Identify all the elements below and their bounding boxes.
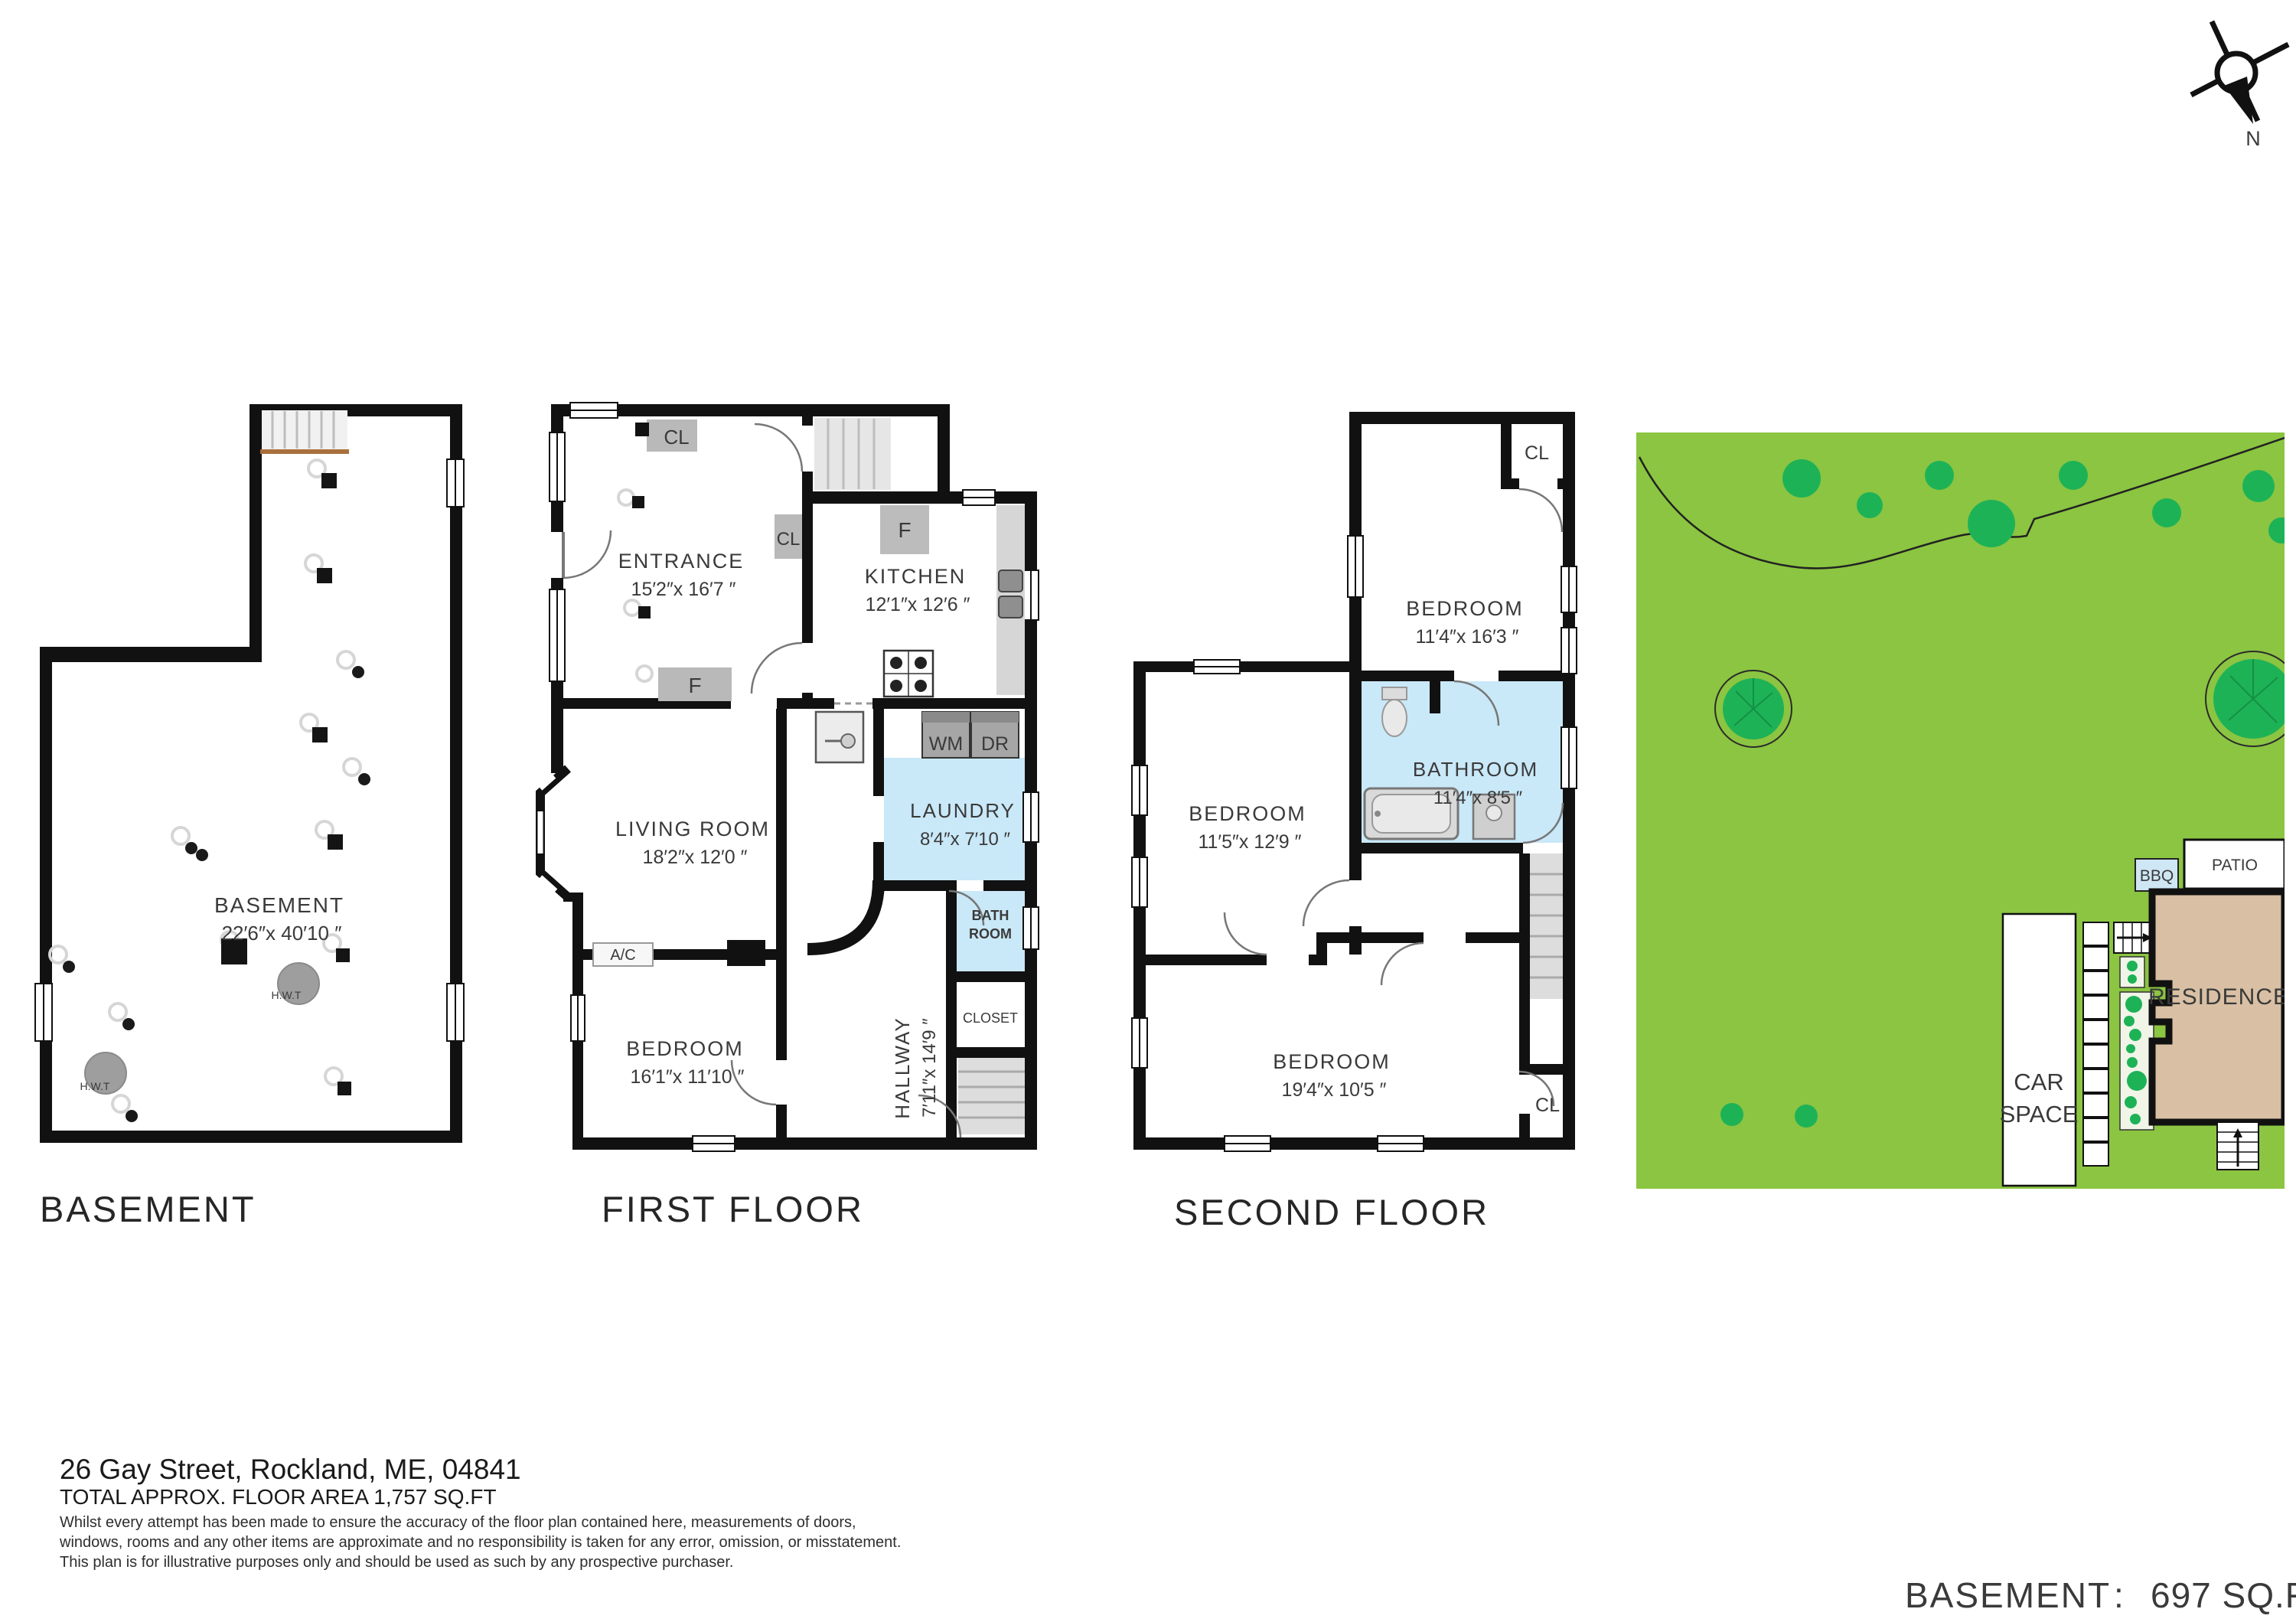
total-area-line: TOTAL APPROX. FLOOR AREA 1,757 SQ.FT — [60, 1485, 497, 1509]
ff-bedroom-dims: 16′1″x 11′10 ″ — [631, 1066, 745, 1088]
basement-title: BASEMENT — [40, 1189, 256, 1229]
basement-area-value: 697 SQ.FT — [2151, 1575, 2296, 1615]
entrance-label: ENTRANCE — [618, 550, 745, 573]
second-floor-plan: CL BEDROOM 11′4″x 16′3 ″ BATHROOM 11′4″x… — [1132, 412, 1577, 1232]
wm-label: WM — [929, 733, 963, 755]
basement-area-sep: : — [2114, 1575, 2124, 1615]
sf-bedroom-bottom-dims: 19′4″x 10′5 ″ — [1282, 1079, 1387, 1101]
shrub-bed — [2120, 992, 2154, 1130]
kitchen-label: KITCHEN — [865, 565, 967, 588]
basement-room-dims: 22′6″x 40′10 ″ — [222, 922, 342, 945]
basement-room-label: BASEMENT — [214, 893, 344, 917]
cl-mid-label: CL — [777, 529, 801, 550]
laundry-dims: 8′4″x 7′10 ″ — [920, 829, 1011, 850]
bbq-label: BBQ — [2140, 867, 2174, 885]
car-space-label2: SPACE — [2000, 1101, 2079, 1128]
residence-stairs — [2217, 1122, 2258, 1170]
sf-stairs — [1530, 853, 1563, 999]
sf-bathroom-dims: 11′4″x 8′5 ″ — [1433, 788, 1523, 808]
hot-water-tank-2: H.W.T — [80, 1053, 126, 1094]
sf-toilet — [1382, 687, 1407, 736]
living-room-dims: 18′2″x 12′0 ″ — [643, 847, 748, 868]
disclaimer-line-1: Whilst every attempt has been made to en… — [60, 1514, 856, 1531]
sf-cl-bottom-label: CL — [1535, 1095, 1560, 1116]
basement-stairs — [260, 410, 349, 452]
disclaimer-line-3: This plan is for illustrative purposes o… — [60, 1554, 734, 1571]
sf-cl-top-label: CL — [1525, 442, 1549, 464]
laundry-label: LAUNDRY — [910, 799, 1016, 822]
basement-posts — [221, 473, 351, 1095]
stove — [884, 651, 933, 697]
hallway-dims: 7′11″x 14′9 ″ — [919, 1018, 940, 1118]
compass-north-label: N — [2245, 127, 2261, 150]
hallway-label: HALLWAY — [891, 1017, 914, 1118]
cl-top-label: CL — [664, 426, 689, 449]
hot-water-tank-1: H.W.T — [272, 963, 319, 1004]
car-space — [2003, 914, 2076, 1186]
ff-bedroom-label: BEDROOM — [626, 1037, 744, 1060]
first-floor-title: FIRST FLOOR — [602, 1189, 864, 1229]
f-kitchen-label: F — [898, 518, 911, 542]
basement-ghost-markers — [50, 460, 360, 1112]
hallway-stairs — [958, 1058, 1025, 1134]
basement-plan: H.W.T H.W.T BASEMENT 22′6″x 40′10 ″ BASE… — [35, 404, 464, 1229]
tree-left — [1715, 671, 1792, 747]
basement-area-line: BASEMENT : 697 SQ.FT — [1905, 1575, 2296, 1615]
walkway — [2083, 922, 2108, 1166]
patio-label: PATIO — [2212, 857, 2258, 874]
closet-label: CLOSET — [963, 1010, 1018, 1026]
ff-bath-label1: BATH — [972, 908, 1009, 923]
ac-label: A/C — [610, 947, 635, 964]
sf-bedroom-left-label: BEDROOM — [1189, 802, 1306, 825]
basement-area-label: BASEMENT — [1905, 1575, 2111, 1615]
compass-icon: N — [2191, 21, 2288, 150]
side-steps — [2114, 922, 2152, 953]
entrance-dims: 15′2″x 16′7 ″ — [631, 579, 736, 600]
hwt1-label: H.W.T — [272, 989, 302, 1001]
kitchen-dims: 12′1″x 12′6 ″ — [866, 594, 970, 615]
sf-bedroom-left-dims: 11′5″x 12′9 ″ — [1198, 831, 1301, 853]
living-room-label: LIVING ROOM — [615, 818, 770, 840]
sf-bedroom-top-label: BEDROOM — [1406, 597, 1524, 620]
second-floor-title: SECOND FLOOR — [1174, 1192, 1489, 1232]
first-floor-plan: WM DR F CL CL F A/C ENTRANCE 15′2″x 16′7… — [540, 403, 1039, 1229]
sf-bathroom-label: BATHROOM — [1413, 758, 1538, 781]
hwt2-label: H.W.T — [80, 1080, 110, 1092]
ff-bath-label2: ROOM — [969, 926, 1012, 942]
sf-bedroom-bottom-label: BEDROOM — [1273, 1050, 1391, 1073]
site-plan: CAR SPACE — [1636, 432, 2296, 1189]
residence-label: RESIDENCE — [2148, 984, 2289, 1010]
f-entrance-label: F — [688, 674, 701, 697]
car-space-label1: CAR — [2014, 1069, 2063, 1095]
dr-label: DR — [981, 733, 1009, 755]
floorplan-sheet: N — [0, 0, 2296, 1622]
utility-sink — [816, 712, 863, 762]
address-line: 26 Gay Street, Rockland, ME, 04841 — [60, 1454, 521, 1485]
entry-stairs — [814, 418, 937, 490]
sf-bedroom-top-dims: 11′4″x 16′3 ″ — [1415, 626, 1518, 648]
disclaimer-line-2: windows, rooms and any other items are a… — [59, 1534, 901, 1551]
shrub-bed-small — [2120, 957, 2144, 987]
footer: 26 Gay Street, Rockland, ME, 04841 TOTAL… — [59, 1454, 2296, 1615]
bay-window — [540, 769, 568, 897]
